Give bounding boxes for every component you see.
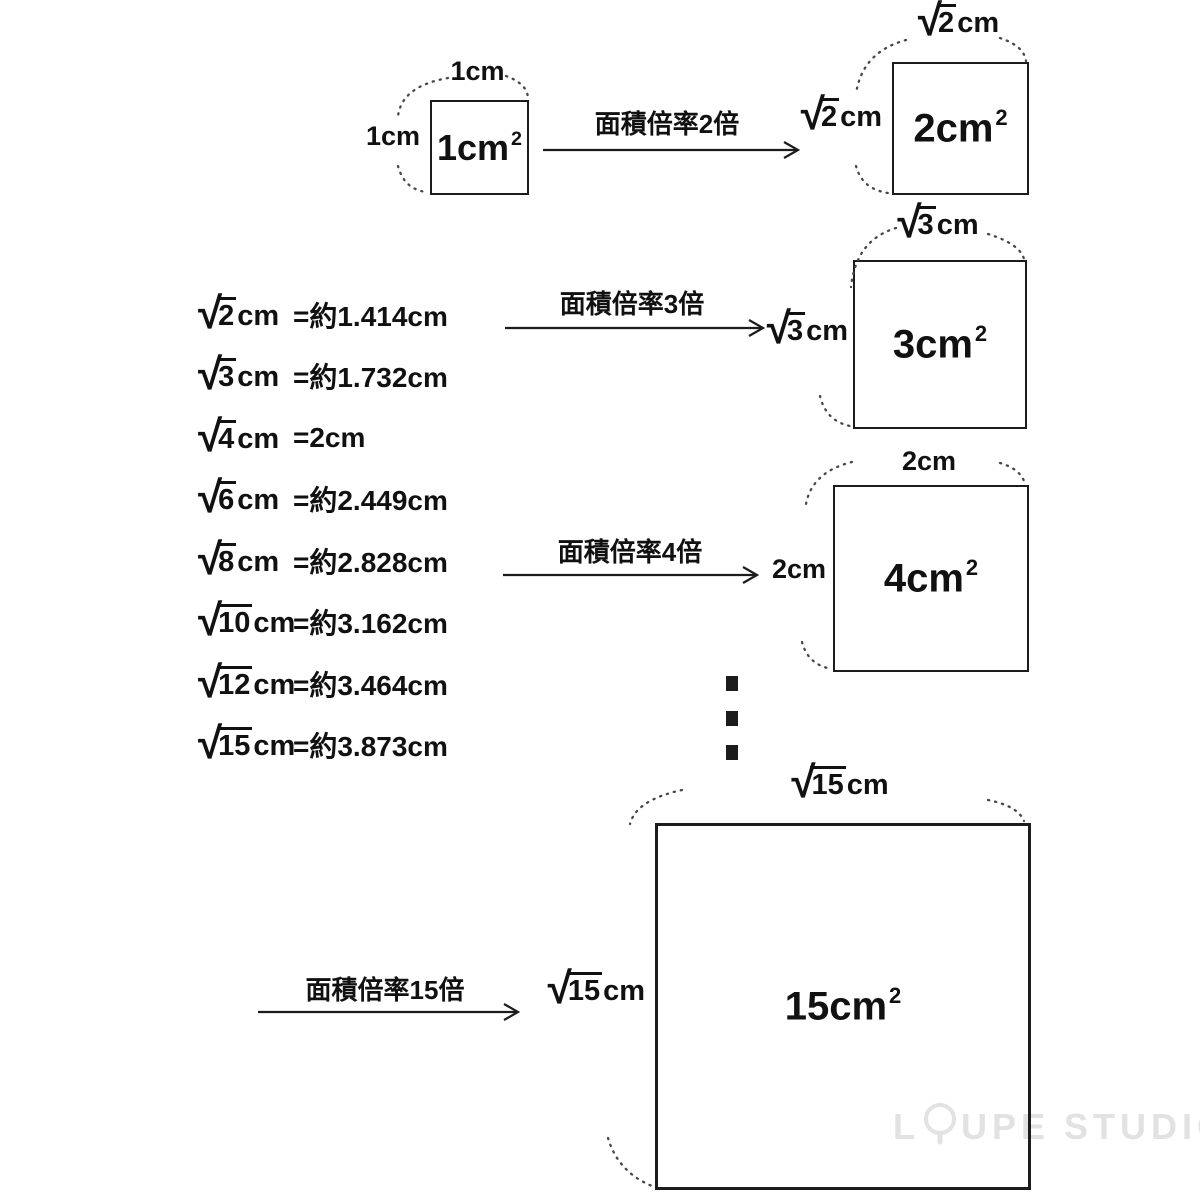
sqrt-value-list: √2cm =約1.414cm √3cm =約1.732cm √4cm =2cm … xyxy=(198,284,448,776)
equation-row: √4cm =2cm xyxy=(198,407,448,469)
square1-top-side-label: 1cm xyxy=(430,56,525,87)
equation-row: √10cm =約3.162cm xyxy=(198,592,448,654)
square4-left-side-label: 2cm xyxy=(752,554,826,585)
arrow-label-15x: 面積倍率15倍 xyxy=(260,970,510,1007)
connectors-layer xyxy=(0,0,1200,1200)
arrow-4x xyxy=(503,567,757,583)
diagram-canvas: LUPESTUDIO 1cm2 2cm2 3cm2 4cm2 15cm2 1cm… xyxy=(0,0,1200,1200)
equation-row: √3cm =約1.732cm xyxy=(198,346,448,408)
square4-top-side-label: 2cm xyxy=(833,446,1025,477)
equation-row: √8cm =約2.828cm xyxy=(198,530,448,592)
arrow-label-4x: 面積倍率4倍 xyxy=(505,532,755,569)
square5-left-side-label: √15cm xyxy=(515,972,645,1008)
vertical-ellipsis xyxy=(726,676,738,760)
equation-row: √6cm =約2.449cm xyxy=(198,469,448,531)
square5-top-side-label: √15cm xyxy=(655,766,1025,802)
square1-left-side-label: 1cm xyxy=(346,121,420,152)
equation-row: √2cm =約1.414cm xyxy=(198,284,448,346)
arrow-3x xyxy=(505,320,763,336)
equation-row: √12cm =約3.464cm xyxy=(198,653,448,715)
arrow-label-2x: 面積倍率2倍 xyxy=(542,104,792,141)
square2-top-side-label: √2cm xyxy=(880,4,1037,40)
arrow-2x xyxy=(543,142,798,158)
square3-top-side-label: √3cm xyxy=(845,206,1031,242)
equation-row: √15cm =約3.873cm xyxy=(198,715,448,777)
arrow-label-3x: 面積倍率3倍 xyxy=(507,284,757,321)
